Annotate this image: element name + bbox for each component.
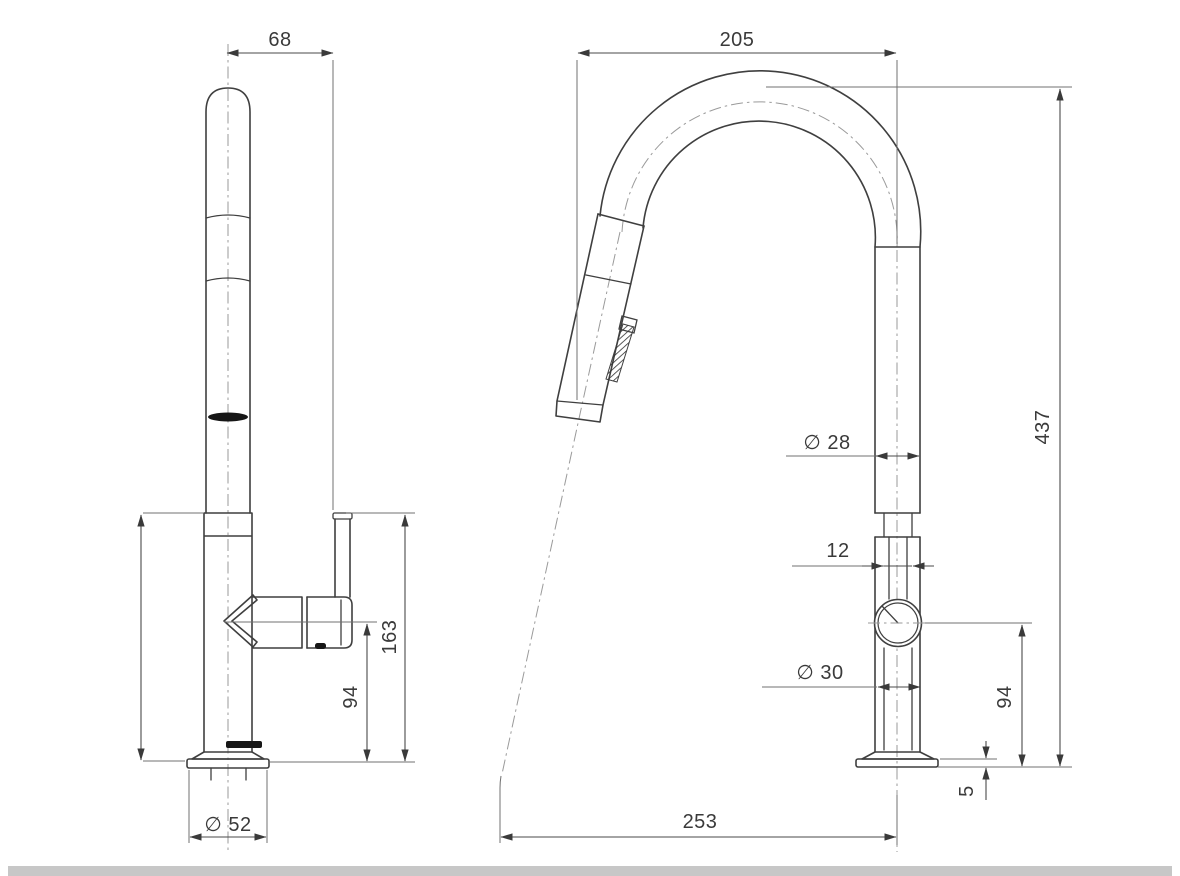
front-handle: [224, 513, 352, 649]
brand-logo-mark: [226, 741, 262, 748]
spray-axis-extension: [500, 776, 501, 843]
spray-axis-centerline: [502, 232, 620, 774]
front-view: [187, 44, 352, 852]
dim-front-left-height: [141, 513, 203, 761]
mixer-cartridge: [868, 600, 928, 647]
dim-label-5: 5: [956, 785, 978, 797]
faucet-technical-drawing: 68 163 94 ∅ 52: [0, 0, 1180, 876]
dim-label-437: 437: [1032, 410, 1054, 445]
dim-label-68: 68: [268, 29, 291, 51]
spray-head-tip-seam: [557, 401, 603, 405]
dim-label-253: 253: [683, 811, 718, 833]
dim-label-d52: ∅ 52: [204, 814, 251, 836]
faucet-technical-drawing-page: 68 163 94 ∅ 52: [0, 0, 1180, 876]
side-base-flare: [862, 752, 934, 759]
dim-side-spray-projection: 253: [501, 795, 897, 845]
dim-label-12: 12: [826, 540, 849, 562]
dim-label-94-side: 94: [994, 685, 1016, 708]
side-body-collar-lines: [884, 513, 912, 537]
dim-side-base-thickness: 5: [940, 741, 997, 800]
dim-front-handle-centre-height: 94: [224, 622, 377, 761]
side-view: [500, 71, 938, 852]
front-lever-cap: [333, 513, 352, 519]
front-hub-detail-mark: [315, 643, 326, 649]
page-edge-strip: [8, 866, 1172, 876]
front-lever-bar: [335, 519, 350, 597]
spray-head-seam-top: [598, 214, 644, 226]
dim-front-spout-to-handle: 68: [227, 29, 333, 510]
dim-side-mixer-centre-height: 94: [925, 623, 1032, 766]
front-seal-ring: [208, 413, 248, 422]
spray-head: [556, 214, 644, 422]
front-dimensions: 68 163 94 ∅ 52: [141, 29, 415, 843]
dim-front-height-to-handle-top: 163: [270, 513, 415, 762]
dim-label-163: 163: [379, 620, 401, 655]
dim-side-cartridge-slot: 12: [792, 540, 934, 566]
dim-label-d28: ∅ 28: [803, 432, 850, 454]
dim-label-d30: ∅ 30: [796, 662, 843, 684]
dim-label-205: 205: [720, 29, 755, 51]
dim-side-body-diameter: ∅ 30: [762, 662, 920, 687]
dim-label-94-front: 94: [340, 685, 362, 708]
spray-button-hatch: [606, 324, 634, 382]
gooseneck-inner-arc: [643, 121, 875, 247]
dim-side-spout-diameter: ∅ 28: [786, 432, 919, 456]
side-dimensions: 205 437 ∅ 28 12 ∅ 30: [501, 29, 1072, 845]
